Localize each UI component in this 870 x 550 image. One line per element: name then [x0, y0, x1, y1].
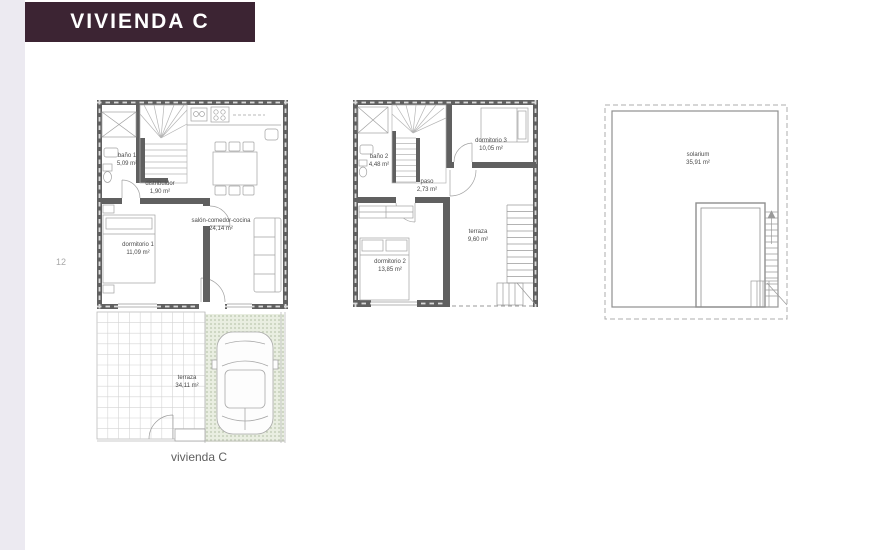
kitchen: [187, 107, 281, 140]
bed-dormitorio3: [481, 108, 528, 142]
first-floor-plan: [351, 98, 543, 320]
car: [212, 332, 278, 434]
page-number: 12: [56, 257, 66, 267]
room-label-distribuidor: distribuidor 1,90 m²: [145, 181, 174, 197]
room-label-terraza-p1: terraza 9,60 m²: [468, 229, 488, 245]
staircase: [140, 105, 187, 183]
room-label-bano2: baño 2 4,48 m²: [369, 154, 389, 170]
sofa: [254, 218, 281, 292]
page-title: VIVIENDA C: [70, 10, 209, 34]
exterior-stair: [497, 205, 535, 305]
room-label-paso: paso 2,73 m²: [417, 179, 437, 195]
ground-floor-plan: [95, 98, 295, 445]
bed-dormitorio2: [359, 206, 413, 300]
terrace-gate: [149, 415, 205, 441]
room-label-dormitorio2: dormitorio 2 13,85 m²: [374, 259, 406, 275]
brochure-page: VIVIENDA C 12: [0, 0, 870, 550]
sidebar-strip: [0, 0, 25, 550]
room-label-dormitorio3: dormitorio 3 10,05 m²: [475, 138, 507, 154]
dining-table: [213, 142, 257, 195]
solarium-plan: [601, 98, 793, 323]
shower-bath1: [102, 112, 136, 183]
room-label-solarium: solarium 35,91 m²: [686, 152, 710, 168]
title-bar: VIVIENDA C: [25, 2, 255, 42]
room-label-terraza-pb: terraza 34,11 m²: [175, 375, 198, 391]
plan-caption: vivienda C: [171, 450, 227, 464]
room-label-dormitorio1: dormitorio 1 11,09 m²: [122, 242, 154, 258]
room-label-salon: salón-comedor-cocina 24,14 m²: [191, 218, 250, 234]
room-label-bano1: baño 1 5,09 m²: [117, 153, 137, 169]
